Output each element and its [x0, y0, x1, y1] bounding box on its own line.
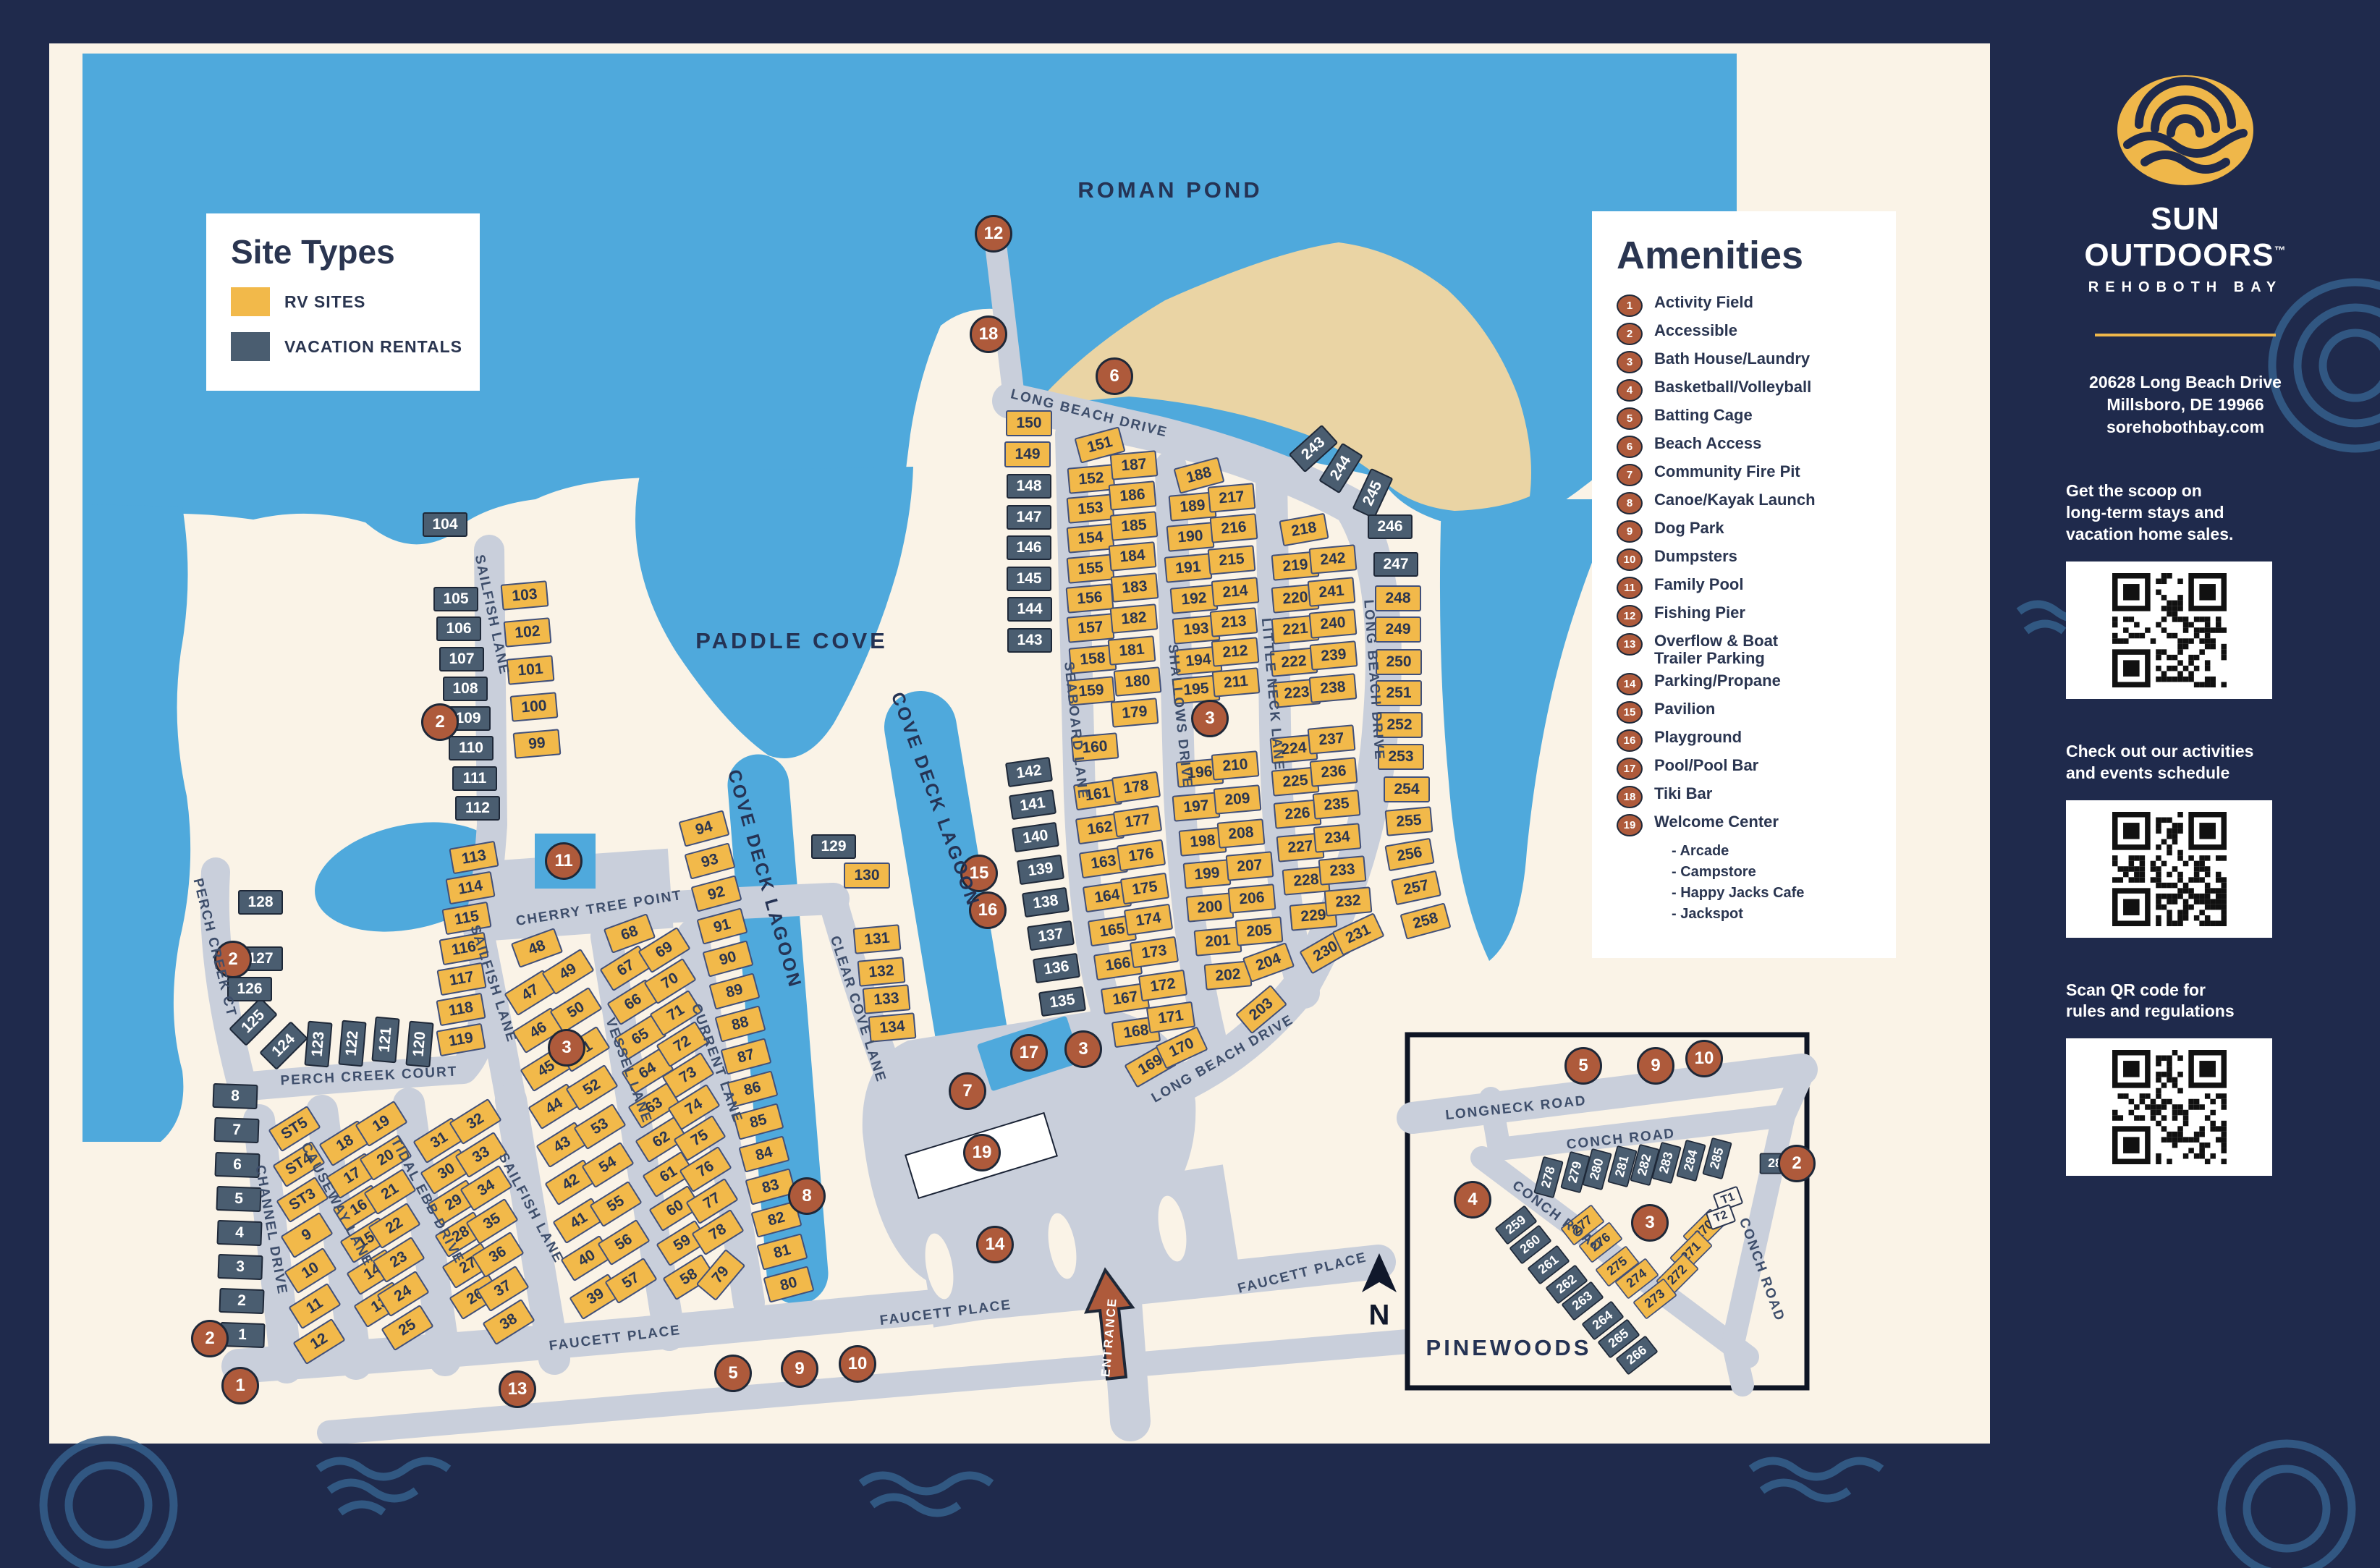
amenity-badge-10: 10: [1685, 1040, 1723, 1077]
amenity-item: 8Canoe/Kayak Launch: [1617, 491, 1883, 514]
water-label: PADDLE COVE: [695, 628, 888, 654]
site-marker-205: 205: [1235, 916, 1284, 946]
site-marker-209: 209: [1214, 784, 1262, 814]
site-marker-148: 148: [1007, 474, 1051, 499]
site-marker-208: 208: [1217, 818, 1266, 848]
site-marker-217: 217: [1208, 483, 1256, 512]
divider: [2095, 334, 2276, 336]
address-line: 20628 Long Beach Drive: [2066, 371, 2305, 394]
site-marker-285: 285: [1702, 1137, 1732, 1179]
site-marker-94: 94: [678, 810, 729, 847]
site-marker-149: 149: [1004, 441, 1051, 467]
site-marker-181: 181: [1108, 635, 1156, 665]
site-marker-132: 132: [857, 957, 906, 986]
site-marker-197: 197: [1172, 792, 1221, 821]
site-marker-80: 80: [763, 1266, 814, 1302]
amenity-label: Community Fire Pit: [1654, 463, 1800, 480]
amenities-panel: Amenities 1Activity Field2Accessible3Bat…: [1592, 211, 1896, 958]
site-marker-174: 174: [1124, 904, 1173, 936]
site-marker-128: 128: [238, 890, 283, 915]
site-marker-133: 133: [863, 984, 911, 1014]
amenity-badge-5: 5: [714, 1355, 752, 1392]
amenity-label: Pool/Pool Bar: [1654, 757, 1758, 774]
site-marker-131: 131: [853, 924, 902, 954]
qr-caption: Get the scoop on long-term stays and vac…: [2066, 480, 2305, 546]
qr-caption: Scan QR code for rules and regulations: [2066, 980, 2305, 1023]
site-marker-235: 235: [1313, 789, 1361, 819]
site-marker-179: 179: [1111, 698, 1159, 727]
water-label: ROMAN POND: [1077, 177, 1262, 203]
amenity-badge-9: 9: [1637, 1047, 1674, 1085]
site-marker-234: 234: [1313, 823, 1362, 852]
site-marker-175: 175: [1120, 873, 1169, 905]
site-marker-155: 155: [1067, 554, 1115, 583]
site-marker-87: 87: [720, 1038, 771, 1075]
site-marker-241: 241: [1308, 577, 1356, 606]
site-marker-211: 211: [1212, 667, 1261, 697]
site-marker-257: 257: [1391, 870, 1441, 906]
site-marker-141: 141: [1009, 789, 1056, 820]
legend-label: RV SITES: [284, 292, 365, 312]
water-label: COVE DECK LAGOON: [886, 690, 983, 910]
entrance-label: ENTRANCE: [1098, 1297, 1120, 1378]
amenity-badge-6: 6: [1096, 357, 1133, 395]
amenity-item: 11Family Pool: [1617, 576, 1883, 599]
qr-section: Scan QR code for rules and regulations: [2066, 980, 2305, 1177]
amenity-number-badge: 4: [1617, 379, 1643, 402]
site-marker-103: 103: [501, 580, 549, 610]
site-marker-147: 147: [1007, 505, 1051, 530]
amenity-number-badge: 7: [1617, 464, 1643, 486]
site-marker-192: 192: [1170, 584, 1219, 614]
amenity-label: Beach Access: [1654, 435, 1761, 452]
site-marker-172: 172: [1138, 970, 1187, 1002]
amenity-badge-13: 13: [499, 1370, 536, 1408]
site-marker-139: 139: [1017, 855, 1064, 885]
amenity-label: Tiki Bar: [1654, 785, 1712, 802]
site-marker-204: 204: [1242, 942, 1295, 983]
site-marker-150: 150: [1006, 410, 1052, 436]
site-marker-137: 137: [1027, 920, 1075, 951]
amenity-label: Accessible: [1654, 322, 1737, 339]
site-marker-201: 201: [1194, 926, 1242, 956]
site-marker-130: 130: [844, 863, 890, 889]
site-marker-2: 2: [219, 1288, 264, 1314]
site-marker-183: 183: [1111, 572, 1159, 602]
amenity-badge-3: 3: [1191, 700, 1229, 737]
amenity-sub-label: - Arcade: [1672, 842, 1883, 861]
amenity-item: 14Parking/Propane: [1617, 672, 1883, 695]
brand-location: REHOBOTH BAY: [2066, 279, 2305, 296]
site-marker-216: 216: [1210, 513, 1258, 543]
legend-label: VACATION RENTALS: [284, 337, 462, 357]
road-label: FAUCETT PLACE: [879, 1297, 1013, 1329]
amenity-item: 5Batting Cage: [1617, 407, 1883, 430]
legend-title: Site Types: [231, 232, 480, 271]
site-marker-118: 118: [436, 993, 486, 1027]
amenity-badge-2: 2: [421, 703, 459, 741]
road-label: CONCH ROAD: [1735, 1216, 1787, 1323]
site-marker-123: 123: [304, 1021, 332, 1068]
inset-region-label: PINEWOODS: [1426, 1335, 1592, 1361]
site-marker-240: 240: [1309, 609, 1358, 638]
site-marker-107: 107: [439, 647, 484, 671]
site-marker-210: 210: [1211, 750, 1260, 780]
address-line: Millsboro, DE 19966: [2066, 394, 2305, 416]
amenity-number-badge: 15: [1617, 701, 1643, 724]
site-marker-207: 207: [1226, 851, 1274, 881]
site-marker-255: 255: [1385, 806, 1433, 836]
amenity-number-badge: 8: [1617, 492, 1643, 514]
amenity-item: 3Bath House/Laundry: [1617, 350, 1883, 373]
qr-section: Get the scoop on long-term stays and vac…: [2066, 480, 2305, 699]
amenity-item: 7Community Fire Pit: [1617, 463, 1883, 486]
road-label: FAUCETT PLACE: [1236, 1250, 1368, 1297]
site-marker-92: 92: [690, 875, 742, 912]
amenity-sub-label: - Jackspot: [1672, 904, 1883, 924]
amenity-number-badge: 19: [1617, 814, 1643, 836]
site-marker-171: 171: [1146, 1001, 1195, 1034]
amenity-number-badge: 1: [1617, 294, 1643, 317]
amenity-label: Activity Field: [1654, 294, 1753, 311]
site-marker-254: 254: [1384, 776, 1430, 802]
site-marker-135: 135: [1038, 986, 1086, 1017]
site-marker-233: 233: [1318, 855, 1367, 885]
brand-sidebar: SUN OUTDOORS™ REHOBOTH BAY 20628 Long Be…: [1990, 0, 2380, 1568]
amenity-item: 13Overflow & Boat Trailer Parking: [1617, 632, 1883, 667]
amenity-badge-11: 11: [545, 842, 583, 880]
site-marker-182: 182: [1110, 603, 1159, 633]
amenity-badge-4: 4: [1454, 1181, 1491, 1219]
legend-swatch-icon: [231, 287, 270, 316]
site-marker-114: 114: [445, 871, 495, 905]
amenity-item: 6Beach Access: [1617, 435, 1883, 458]
amenity-label: Parking/Propane: [1654, 672, 1781, 690]
site-marker-112: 112: [455, 796, 500, 821]
amenity-number-badge: 17: [1617, 758, 1643, 780]
site-marker-119: 119: [436, 1023, 486, 1057]
amenity-item: 16Playground: [1617, 729, 1883, 752]
sun-outdoors-logo-icon: [2113, 72, 2258, 188]
amenity-badge-19: 19: [963, 1134, 1001, 1171]
site-marker-237: 237: [1308, 724, 1356, 754]
site-marker-191: 191: [1164, 553, 1213, 582]
site-marker-121: 121: [371, 1017, 399, 1064]
site-marker-129: 129: [811, 834, 856, 859]
site-marker-48: 48: [511, 928, 563, 968]
site-marker-104: 104: [423, 512, 467, 537]
site-marker-245: 245: [1352, 468, 1393, 520]
amenity-badge-7: 7: [949, 1072, 986, 1110]
site-marker-248: 248: [1375, 585, 1421, 611]
amenity-item: 4Basketball/Volleyball: [1617, 378, 1883, 402]
amenity-badge-17: 17: [1010, 1034, 1048, 1072]
site-marker-232: 232: [1324, 886, 1373, 916]
amenities-title: Amenities: [1617, 233, 1883, 278]
site-marker-88: 88: [714, 1005, 766, 1042]
qr-section: Check out our activities and events sche…: [2066, 741, 2305, 938]
amenity-item: 1Activity Field: [1617, 294, 1883, 317]
site-marker-89: 89: [708, 972, 760, 1009]
amenity-label: Overflow & Boat Trailer Parking: [1654, 632, 1778, 667]
site-marker-113: 113: [449, 841, 499, 875]
amenity-sub-label: - Campstore: [1672, 863, 1883, 882]
amenity-badge-12: 12: [975, 215, 1012, 253]
amenity-label: Basketball/Volleyball: [1654, 378, 1811, 396]
site-marker-154: 154: [1067, 523, 1115, 553]
site-marker-213: 213: [1210, 607, 1258, 637]
road-label: CHERRY TREE POINT: [514, 888, 683, 930]
site-marker-180: 180: [1114, 666, 1162, 696]
site-marker-111: 111: [452, 766, 497, 791]
site-marker-236: 236: [1310, 757, 1358, 787]
amenity-label: Family Pool: [1654, 576, 1743, 593]
qr-code-icon: [2066, 1038, 2272, 1176]
site-marker-218: 218: [1279, 513, 1329, 547]
road-label: LONGNECK ROAD: [1444, 1093, 1587, 1124]
site-marker-280: 280: [1582, 1148, 1612, 1190]
amenity-item: 15Pavilion: [1617, 700, 1883, 724]
site-marker-122: 122: [338, 1020, 366, 1067]
site-marker-91: 91: [696, 907, 748, 944]
site-marker-246: 246: [1368, 514, 1413, 539]
site-marker-206: 206: [1228, 883, 1276, 913]
amenity-number-badge: 5: [1617, 407, 1643, 430]
amenity-badge-5: 5: [1564, 1047, 1602, 1085]
legend-swatch-icon: [231, 332, 270, 361]
amenity-badge-1: 1: [221, 1367, 259, 1404]
amenity-number-badge: 2: [1617, 323, 1643, 345]
site-marker-153: 153: [1067, 493, 1115, 523]
amenity-number-badge: 9: [1617, 520, 1643, 543]
site-marker-215: 215: [1208, 545, 1256, 575]
site-marker-231: 231: [1331, 912, 1384, 956]
address: 20628 Long Beach Drive Millsboro, DE 199…: [2066, 371, 2305, 438]
amenity-number-badge: 6: [1617, 436, 1643, 458]
road-label: FAUCETT PLACE: [549, 1323, 682, 1355]
site-marker-145: 145: [1007, 567, 1051, 591]
site-marker-176: 176: [1117, 839, 1166, 872]
site-marker-110: 110: [449, 736, 494, 760]
amenity-number-badge: 11: [1617, 577, 1643, 599]
qr-caption: Check out our activities and events sche…: [2066, 741, 2305, 784]
site-marker-247: 247: [1373, 552, 1418, 577]
road-label: PERCH CREEK COURT: [280, 1064, 458, 1090]
site-marker-185: 185: [1110, 511, 1159, 541]
amenity-number-badge: 16: [1617, 729, 1643, 752]
site-marker-186: 186: [1109, 480, 1157, 510]
site-marker-146: 146: [1007, 535, 1051, 560]
site-marker-143: 143: [1007, 628, 1052, 653]
site-marker-106: 106: [436, 616, 481, 641]
site-marker-102: 102: [504, 617, 552, 647]
amenity-number-badge: 10: [1617, 548, 1643, 571]
legend-item: RV SITES: [231, 287, 480, 316]
qr-code-icon: [2066, 561, 2272, 699]
site-marker-173: 173: [1130, 936, 1179, 969]
site-marker-100: 100: [510, 692, 559, 721]
site-marker-184: 184: [1109, 541, 1157, 571]
site-marker-212: 212: [1211, 637, 1260, 666]
site-marker-120: 120: [405, 1021, 433, 1068]
amenity-badge-9: 9: [781, 1350, 818, 1388]
site-marker-142: 142: [1005, 757, 1053, 787]
site-marker-105: 105: [433, 587, 478, 611]
site-marker-200: 200: [1186, 892, 1235, 922]
amenity-badge-2: 2: [1778, 1145, 1816, 1182]
site-marker-108: 108: [443, 677, 488, 701]
site-marker-190: 190: [1166, 522, 1215, 551]
site-marker-242: 242: [1309, 544, 1358, 574]
site-marker-4: 4: [216, 1220, 262, 1246]
site-marker-90: 90: [702, 940, 753, 977]
site-marker-99: 99: [513, 729, 562, 758]
site-marker-124: 124: [259, 1021, 308, 1070]
site-marker-7: 7: [213, 1117, 259, 1143]
amenity-badge-8: 8: [788, 1177, 826, 1215]
site-marker-8: 8: [212, 1083, 258, 1109]
amenity-badge-10: 10: [839, 1345, 876, 1383]
amenity-badge-2: 2: [191, 1320, 229, 1357]
site-marker-3: 3: [217, 1254, 263, 1280]
amenity-number-badge: 12: [1617, 605, 1643, 627]
amenity-label: Fishing Pier: [1654, 604, 1745, 622]
site-marker-93: 93: [684, 842, 735, 879]
site-marker-250: 250: [1376, 649, 1422, 675]
site-marker-178: 178: [1111, 771, 1161, 804]
amenity-label: Canoe/Kayak Launch: [1654, 491, 1816, 509]
site-marker-177: 177: [1113, 805, 1162, 838]
site-marker-199: 199: [1183, 859, 1232, 889]
site-marker-187: 187: [1110, 450, 1159, 480]
amenity-label: Dog Park: [1654, 520, 1724, 537]
amenity-number-badge: 18: [1617, 786, 1643, 808]
amenity-item: 2Accessible: [1617, 322, 1883, 345]
site-marker-214: 214: [1211, 577, 1260, 606]
site-marker-284: 284: [1676, 1140, 1706, 1182]
site-marker-84: 84: [738, 1135, 789, 1172]
amenity-item: 10Dumpsters: [1617, 548, 1883, 571]
amenity-badge-3: 3: [548, 1029, 585, 1067]
legend-item: VACATION RENTALS: [231, 332, 480, 361]
amenity-label: Welcome Center: [1654, 813, 1779, 831]
site-marker-249: 249: [1375, 616, 1421, 643]
amenity-label: Pavilion: [1654, 700, 1715, 718]
website-url: sorehobothbay.com: [2066, 416, 2305, 438]
amenity-sub-label: - Happy Jacks Cafe: [1672, 883, 1883, 903]
amenity-item: 9Dog Park: [1617, 520, 1883, 543]
amenity-label: Batting Cage: [1654, 407, 1753, 424]
amenity-label: Bath House/Laundry: [1654, 350, 1810, 368]
site-marker-156: 156: [1066, 583, 1114, 613]
amenity-item: 12Fishing Pier: [1617, 604, 1883, 627]
amenity-label: Playground: [1654, 729, 1742, 746]
site-marker-258: 258: [1399, 902, 1451, 939]
site-marker-144: 144: [1007, 597, 1052, 622]
site-marker-239: 239: [1310, 640, 1358, 670]
brand-name: SUN OUTDOORS™: [2066, 201, 2305, 274]
site-marker-101: 101: [507, 655, 555, 685]
amenity-number-badge: 13: [1617, 633, 1643, 656]
site-marker-T2: T2: [1706, 1204, 1737, 1231]
site-marker-138: 138: [1022, 887, 1070, 918]
site-marker-256: 256: [1384, 838, 1434, 872]
site-marker-81: 81: [756, 1233, 808, 1270]
amenity-number-badge: 14: [1617, 673, 1643, 695]
site-marker-140: 140: [1012, 822, 1059, 852]
north-label: N: [1369, 1300, 1390, 1332]
amenity-badge-14: 14: [976, 1226, 1014, 1263]
trademark: ™: [2274, 245, 2287, 257]
amenity-item: 17Pool/Pool Bar: [1617, 757, 1883, 780]
qr-code-icon: [2066, 800, 2272, 938]
site-marker-157: 157: [1067, 613, 1115, 643]
amenity-number-badge: 3: [1617, 351, 1643, 373]
site-marker-136: 136: [1033, 953, 1080, 983]
amenity-badge-3: 3: [1631, 1204, 1669, 1242]
amenity-item: 19Welcome Center: [1617, 813, 1883, 836]
site-types-legend: Site Types RV SITESVACATION RENTALS: [206, 213, 480, 391]
amenity-label: Dumpsters: [1654, 548, 1737, 565]
amenity-item: 18Tiki Bar: [1617, 785, 1883, 808]
amenity-badge-3: 3: [1064, 1030, 1102, 1068]
site-marker-238: 238: [1309, 673, 1358, 703]
amenity-badge-18: 18: [970, 315, 1007, 353]
